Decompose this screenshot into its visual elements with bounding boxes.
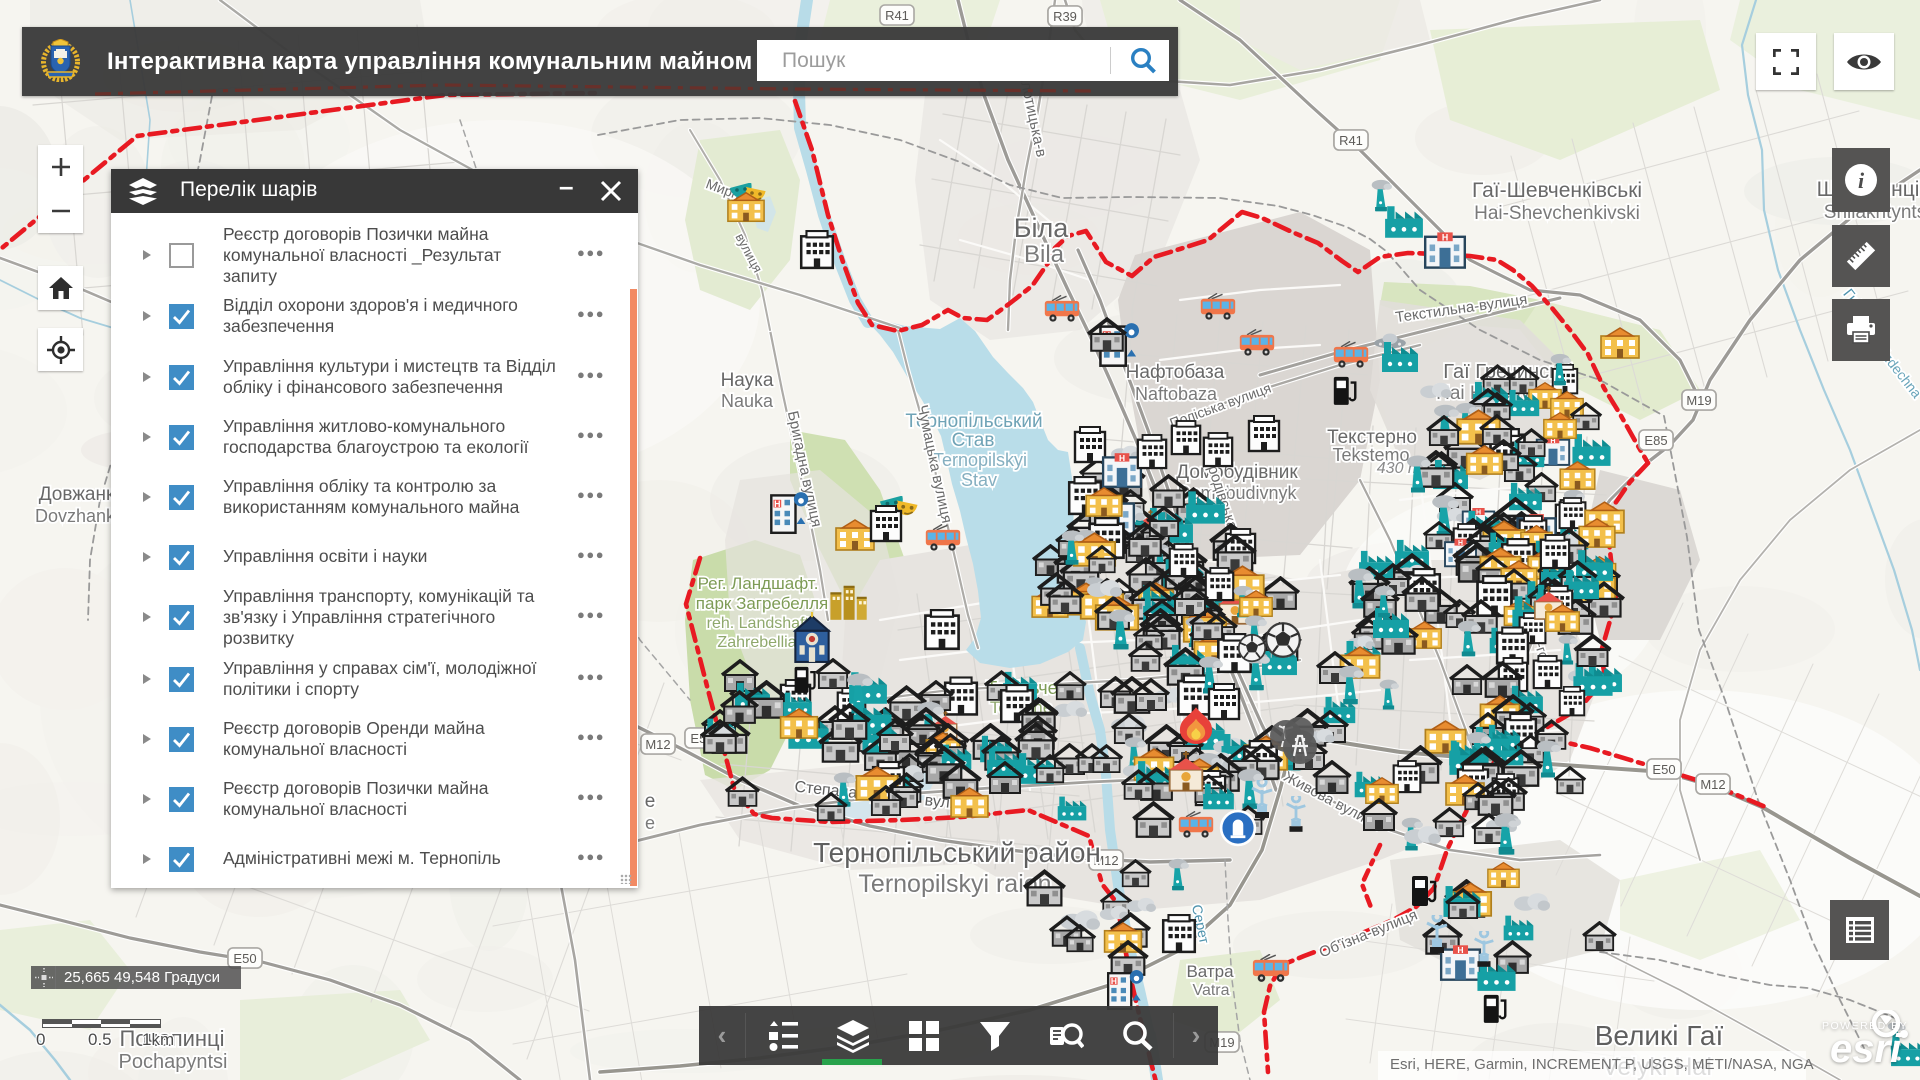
- svg-text:Гаї-Шевченківські: Гаї-Шевченківські: [1472, 179, 1642, 202]
- svg-text:Рег. Ландшафт.: Рег. Ландшафт.: [698, 574, 819, 593]
- svg-text:R39: R39: [1053, 9, 1077, 24]
- svg-text:Naftobaza: Naftobaza: [1135, 384, 1218, 404]
- svg-text:Ternopilskyi raion: Ternopilskyi raion: [858, 870, 1051, 898]
- svg-text:R41: R41: [1339, 133, 1363, 148]
- svg-text:Тернопільський район: Тернопільський район: [813, 837, 1101, 868]
- svg-text:Hai-Shevchenkivski: Hai-Shevchenkivski: [1474, 203, 1640, 224]
- svg-text:esri: esri: [1830, 1027, 1902, 1071]
- svg-text:Vatra: Vatra: [1192, 982, 1229, 999]
- svg-text:Zahrebellia: Zahrebellia: [717, 634, 796, 651]
- svg-text:M12: M12: [1700, 777, 1725, 792]
- svg-text:e: e: [645, 813, 655, 833]
- svg-text:Nauka: Nauka: [721, 391, 774, 411]
- svg-text:Став: Став: [952, 430, 995, 451]
- svg-text:Ternopilskyi: Ternopilskyi: [933, 450, 1027, 470]
- svg-text:E85: E85: [1644, 433, 1667, 448]
- svg-text:Домобудівник: Домобудівник: [1176, 462, 1298, 483]
- svg-text:E50: E50: [1652, 762, 1675, 777]
- svg-text:Великі Гаї: Великі Гаї: [1595, 1020, 1724, 1051]
- svg-text:M12: M12: [645, 737, 670, 752]
- svg-text:E50: E50: [233, 951, 256, 966]
- svg-text:Наука: Наука: [721, 370, 774, 391]
- svg-text:Нафтобаза: Нафтобаза: [1126, 362, 1225, 383]
- svg-text:Bila: Bila: [1024, 241, 1065, 268]
- svg-text:R41: R41: [885, 8, 909, 23]
- svg-text:парк Загребелля: парк Загребелля: [696, 594, 828, 613]
- svg-text:е: е: [645, 791, 656, 812]
- svg-text:Pochapyntsi: Pochapyntsi: [119, 1051, 228, 1073]
- svg-text:Stav: Stav: [961, 470, 997, 490]
- svg-text:i: i: [1858, 168, 1865, 193]
- svg-text:Біла: Біла: [1014, 213, 1069, 243]
- svg-text:Ватра: Ватра: [1186, 962, 1234, 981]
- svg-text:M19: M19: [1686, 393, 1711, 408]
